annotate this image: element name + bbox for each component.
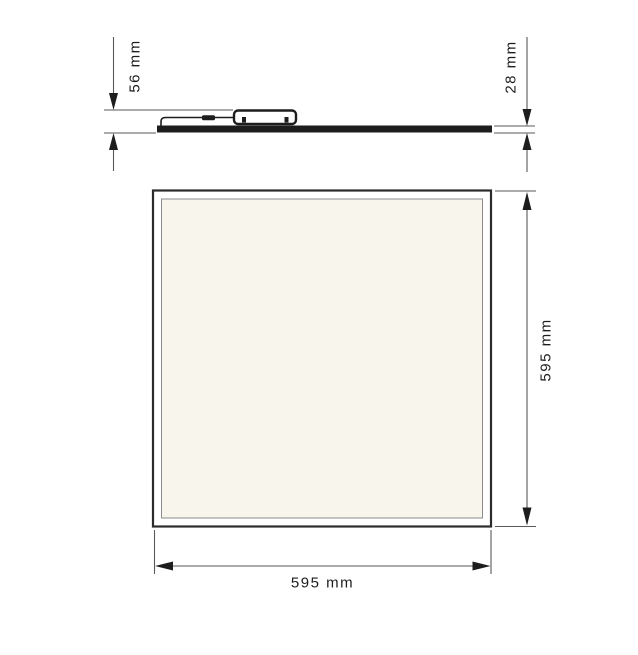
power-cable (161, 118, 235, 126)
dimension-panel-height: 595 mm (495, 191, 555, 527)
arrowhead-left-icon (155, 562, 173, 571)
dimension-label-panel-thickness: 28 mm (503, 40, 520, 93)
arrowhead-down-icon (523, 109, 532, 126)
arrowhead-up-icon (109, 133, 118, 150)
arrowhead-up-icon (523, 133, 532, 150)
dimension-panel-thickness: 28 mm (494, 37, 535, 172)
dimension-label-panel-width: 595 mm (291, 575, 354, 592)
panel-diffuser-face (162, 199, 483, 518)
cable-connector (202, 115, 215, 120)
dimension-label-profile-height: 56 mm (127, 39, 144, 92)
technical-drawing: 56 mm 28 mm 595 mm (0, 0, 638, 655)
panel-side-profile-view (157, 111, 492, 133)
dimension-profile-height: 56 mm (104, 37, 233, 171)
arrowhead-right-icon (473, 562, 491, 571)
panel-front-view (153, 191, 491, 527)
driver-box-left-tab (242, 117, 246, 123)
panel-profile-bar (157, 126, 492, 133)
dimension-label-panel-height: 595 mm (538, 318, 555, 381)
arrowhead-up-icon (523, 192, 532, 210)
arrowhead-down-icon (523, 508, 532, 526)
arrowhead-down-icon (109, 93, 118, 110)
driver-box-right-tab (285, 117, 289, 123)
dimension-panel-width: 595 mm (155, 530, 492, 592)
